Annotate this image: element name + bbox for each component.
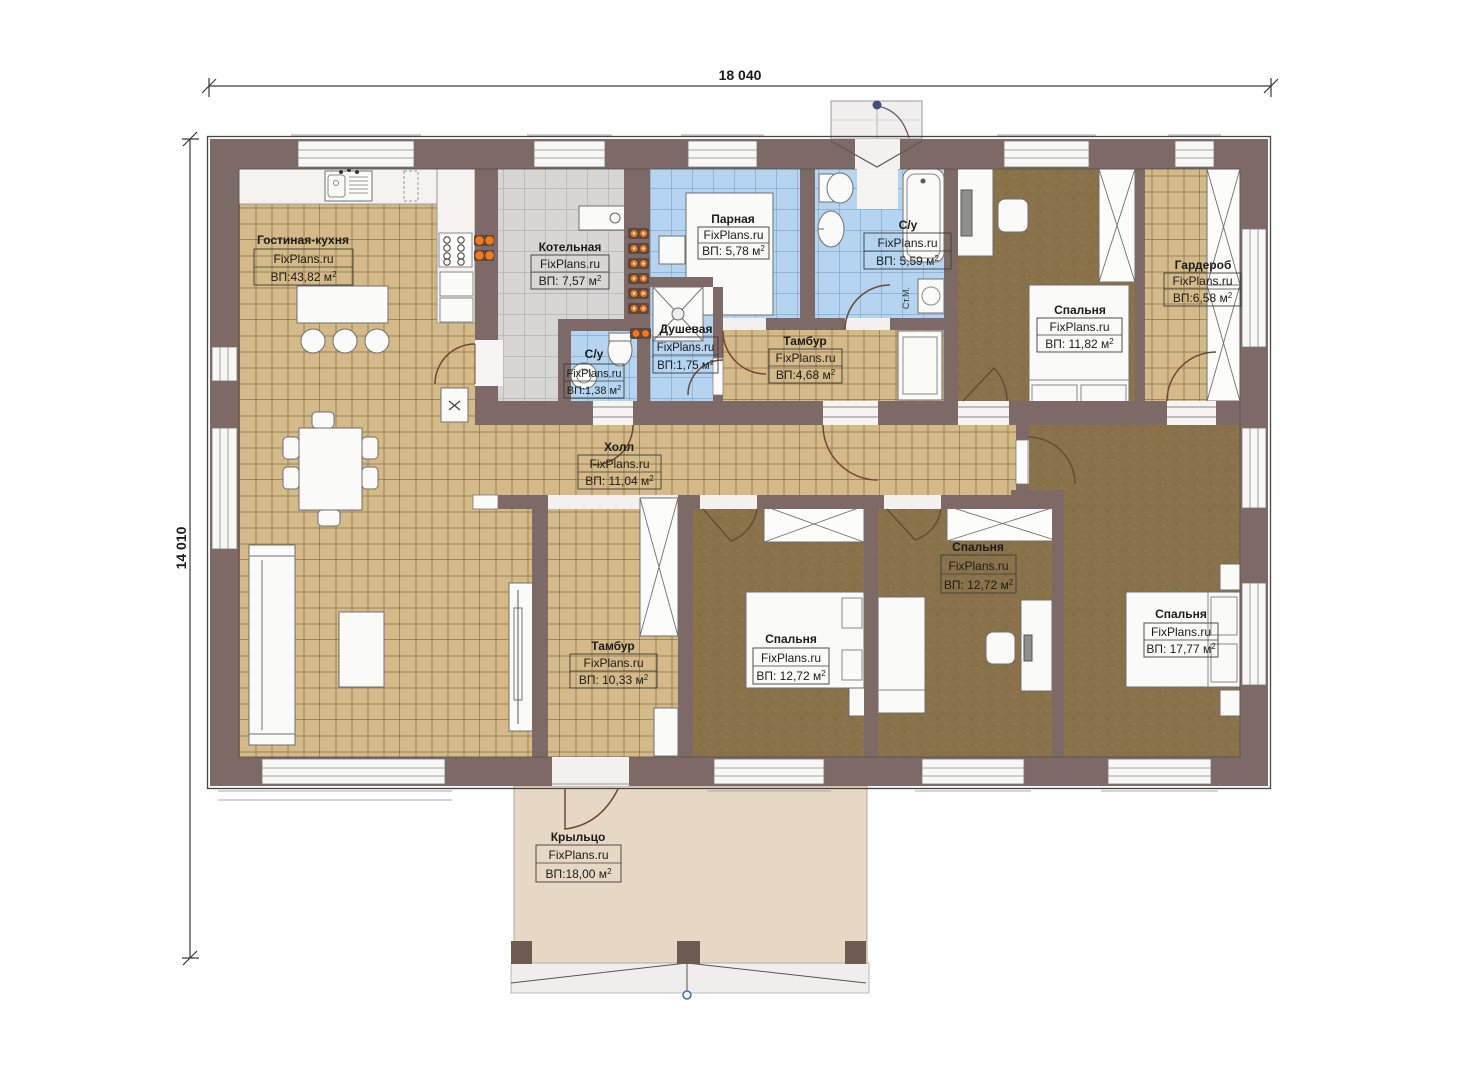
svg-text:FixPlans.ru: FixPlans.ru bbox=[548, 848, 608, 862]
svg-text:ВП:43,82 м2: ВП:43,82 м2 bbox=[270, 270, 337, 284]
svg-text:Душевая: Душевая bbox=[660, 322, 713, 336]
svg-text:FixPlans.ru: FixPlans.ru bbox=[703, 228, 763, 242]
svg-text:ВП:6,58 м2: ВП:6,58 м2 bbox=[1173, 291, 1233, 305]
svg-text:Ст.М.: Ст.М. bbox=[901, 287, 911, 309]
svg-text:ВП: 12,72 м2: ВП: 12,72 м2 bbox=[756, 669, 826, 683]
svg-text:FixPlans.ru: FixPlans.ru bbox=[775, 351, 835, 365]
svg-text:Холл: Холл bbox=[604, 440, 634, 454]
svg-text:FixPlans.ru: FixPlans.ru bbox=[1172, 274, 1232, 288]
svg-text:Спальня: Спальня bbox=[952, 540, 1004, 554]
svg-text:FixPlans.ru: FixPlans.ru bbox=[657, 342, 715, 354]
svg-text:ВП: 17,77 м2: ВП: 17,77 м2 bbox=[1146, 642, 1216, 656]
svg-text:ВП: 5,78 м2: ВП: 5,78 м2 bbox=[702, 244, 765, 258]
svg-text:ВП:1,75 м2: ВП:1,75 м2 bbox=[657, 358, 714, 372]
svg-text:Спальня: Спальня bbox=[1155, 607, 1207, 621]
svg-text:ВП: 11,82 м2: ВП: 11,82 м2 bbox=[1045, 337, 1114, 351]
svg-text:FixPlans.ru: FixPlans.ru bbox=[877, 236, 937, 250]
svg-text:FixPlans.ru: FixPlans.ru bbox=[540, 257, 600, 271]
svg-text:ВП: 5,59 м2: ВП: 5,59 м2 bbox=[876, 254, 939, 268]
svg-text:Гардероб: Гардероб bbox=[1175, 258, 1232, 272]
svg-text:Спальня: Спальня bbox=[765, 632, 817, 646]
svg-text:ВП: 12,72 м2: ВП: 12,72 м2 bbox=[944, 578, 1014, 592]
svg-text:Тамбур: Тамбур bbox=[591, 639, 635, 653]
svg-text:ВП:1,38 м2: ВП:1,38 м2 bbox=[567, 383, 622, 397]
svg-text:FixPlans.ru: FixPlans.ru bbox=[761, 651, 821, 665]
svg-text:ВП:18,00 м2: ВП:18,00 м2 bbox=[545, 867, 612, 881]
svg-text:ВП:4,68 м2: ВП:4,68 м2 bbox=[776, 368, 836, 382]
svg-text:FixPlans.ru: FixPlans.ru bbox=[583, 656, 643, 670]
svg-text:Тамбур: Тамбур bbox=[783, 334, 827, 348]
svg-text:FixPlans.ru: FixPlans.ru bbox=[566, 368, 621, 380]
svg-text:Котельная: Котельная bbox=[539, 240, 602, 254]
svg-text:С/у: С/у bbox=[899, 218, 918, 232]
svg-text:Гостиная-кухня: Гостиная-кухня bbox=[257, 233, 349, 247]
svg-text:ВП: 7,57 м2: ВП: 7,57 м2 bbox=[539, 274, 602, 288]
svg-text:FixPlans.ru: FixPlans.ru bbox=[589, 457, 649, 471]
svg-text:Парная: Парная bbox=[711, 212, 755, 226]
svg-text:FixPlans.ru: FixPlans.ru bbox=[1049, 320, 1109, 334]
svg-text:FixPlans.ru: FixPlans.ru bbox=[273, 252, 333, 266]
svg-text:18 040: 18 040 bbox=[719, 67, 762, 83]
svg-text:Спальня: Спальня bbox=[1054, 303, 1106, 317]
svg-text:FixPlans.ru: FixPlans.ru bbox=[1151, 625, 1211, 639]
svg-text:ВП: 11,04 м2: ВП: 11,04 м2 bbox=[585, 474, 654, 488]
svg-text:Крыльцо: Крыльцо bbox=[551, 830, 606, 844]
svg-text:С/у: С/у bbox=[585, 347, 604, 361]
svg-text:14 010: 14 010 bbox=[173, 526, 189, 569]
svg-text:ВП: 10,33 м2: ВП: 10,33 м2 bbox=[579, 673, 649, 687]
svg-text:FixPlans.ru: FixPlans.ru bbox=[948, 559, 1008, 573]
